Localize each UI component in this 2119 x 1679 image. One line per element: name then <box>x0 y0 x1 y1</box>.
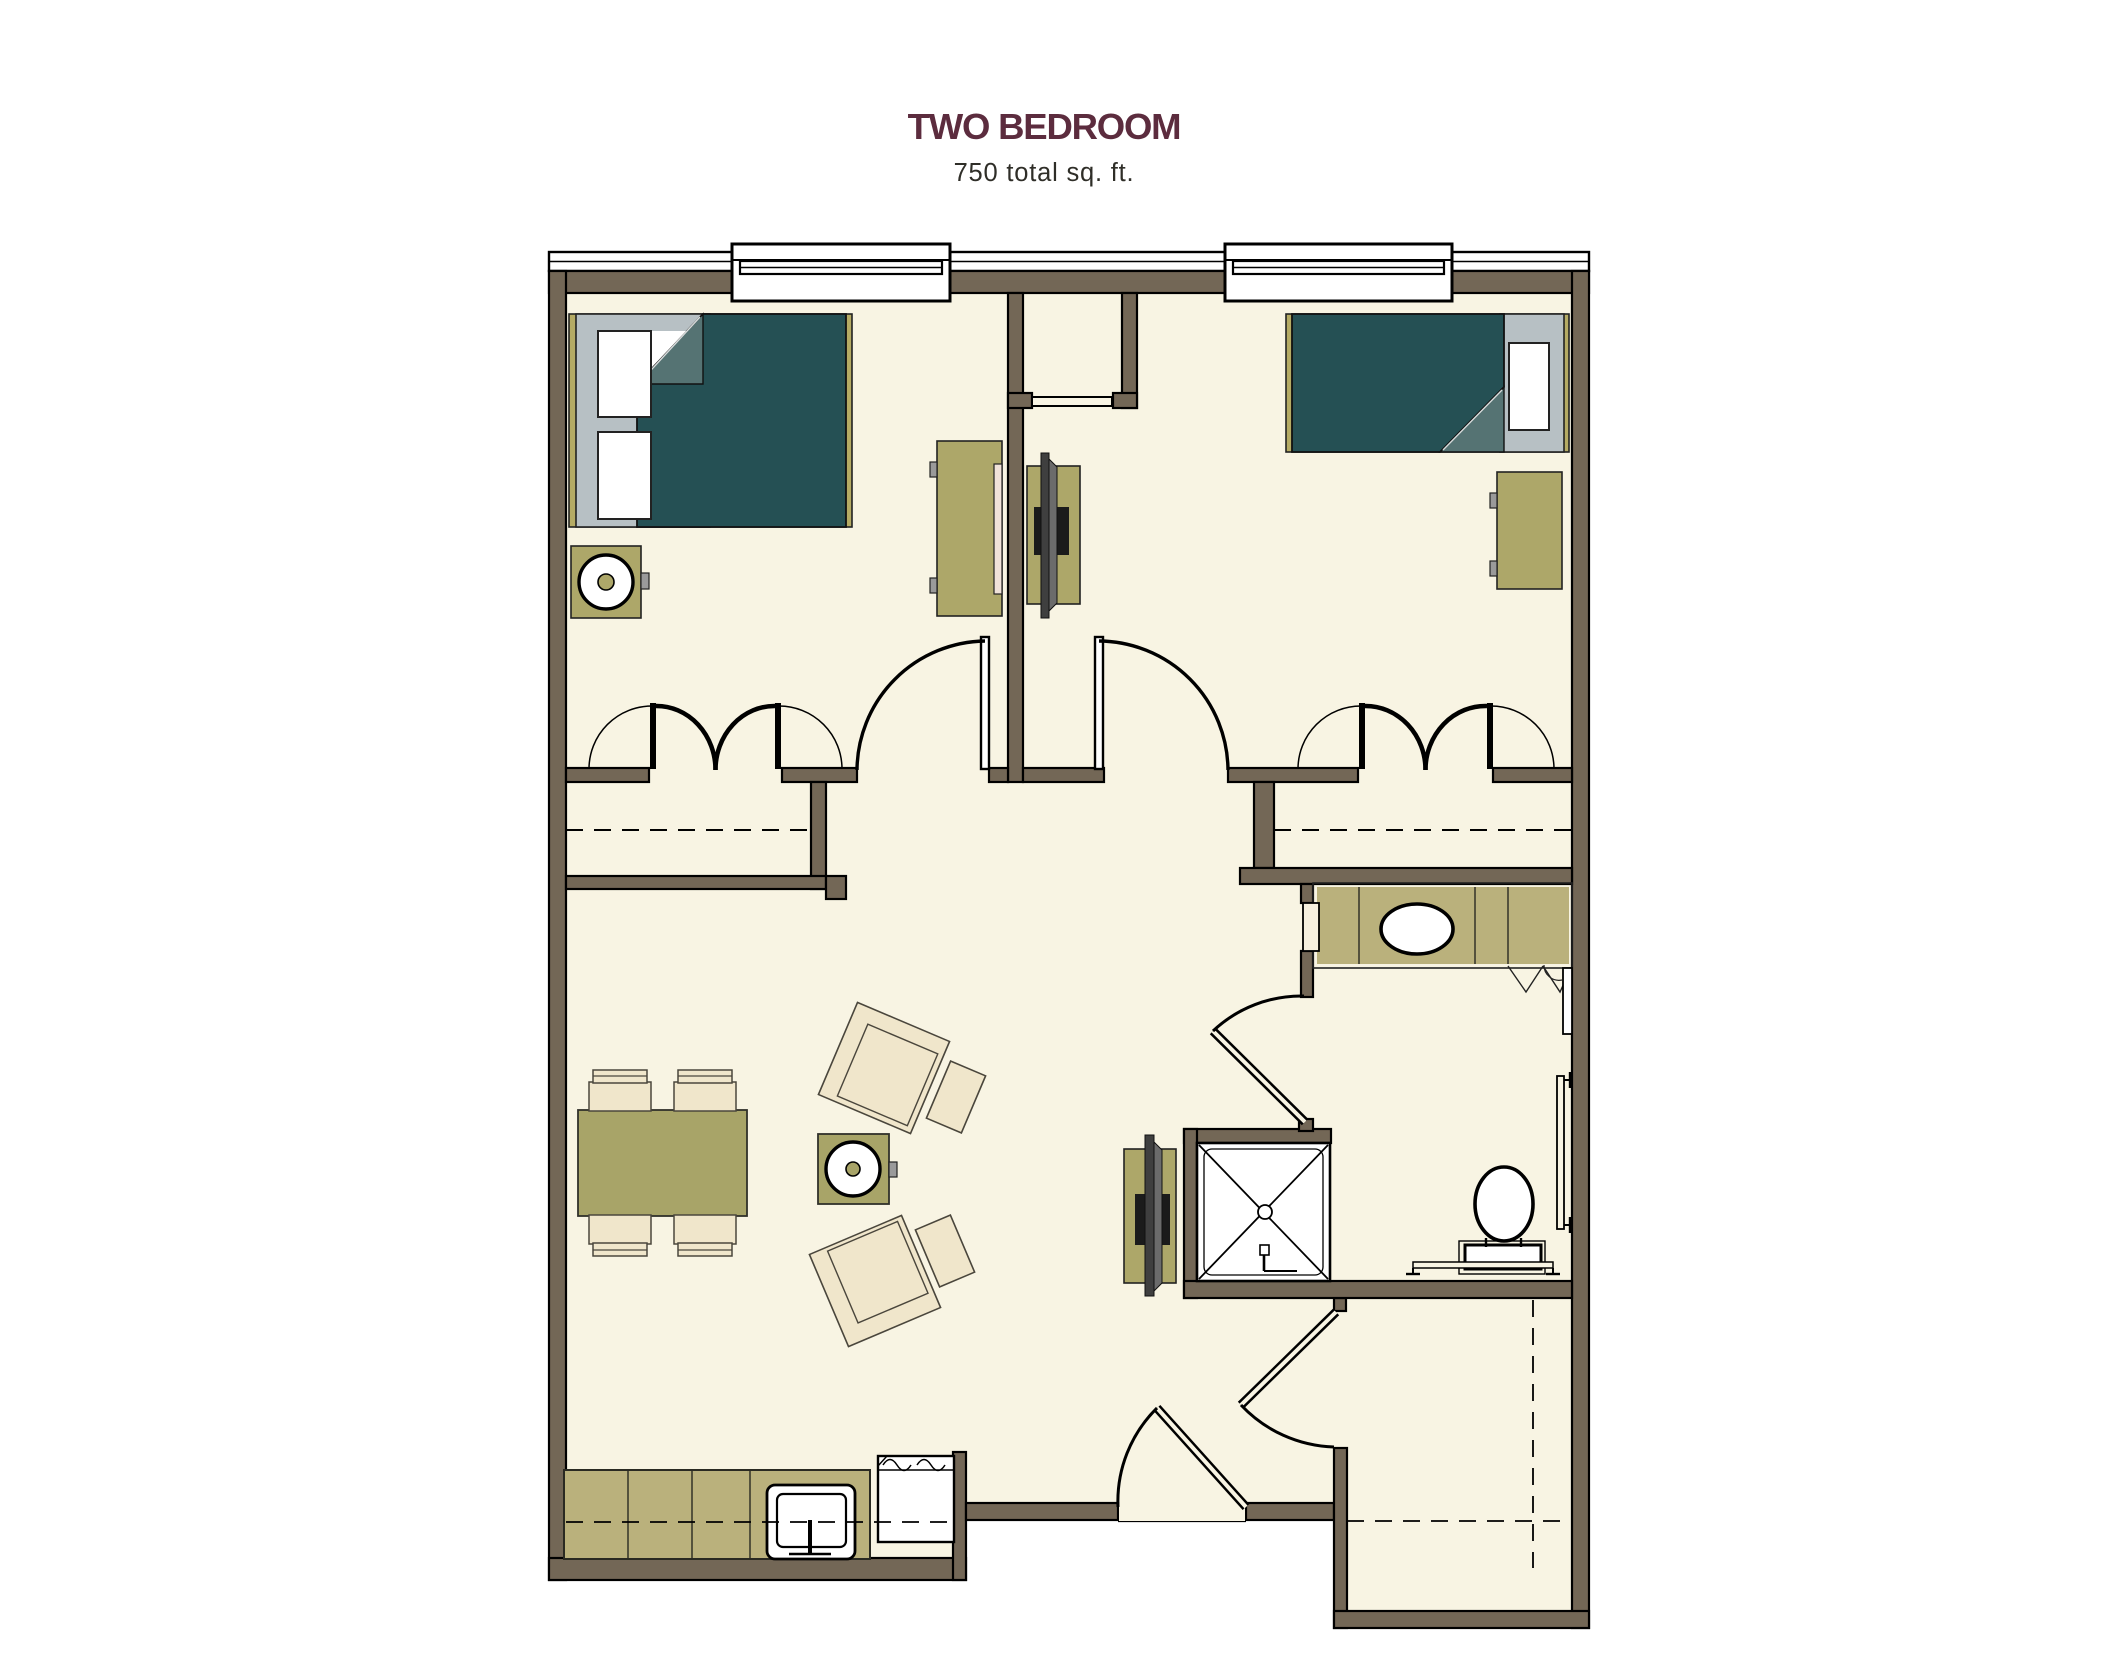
svg-text:TWO BEDROOM: TWO BEDROOM <box>908 106 1181 147</box>
svg-text:750 total sq. ft.: 750 total sq. ft. <box>954 159 1135 187</box>
